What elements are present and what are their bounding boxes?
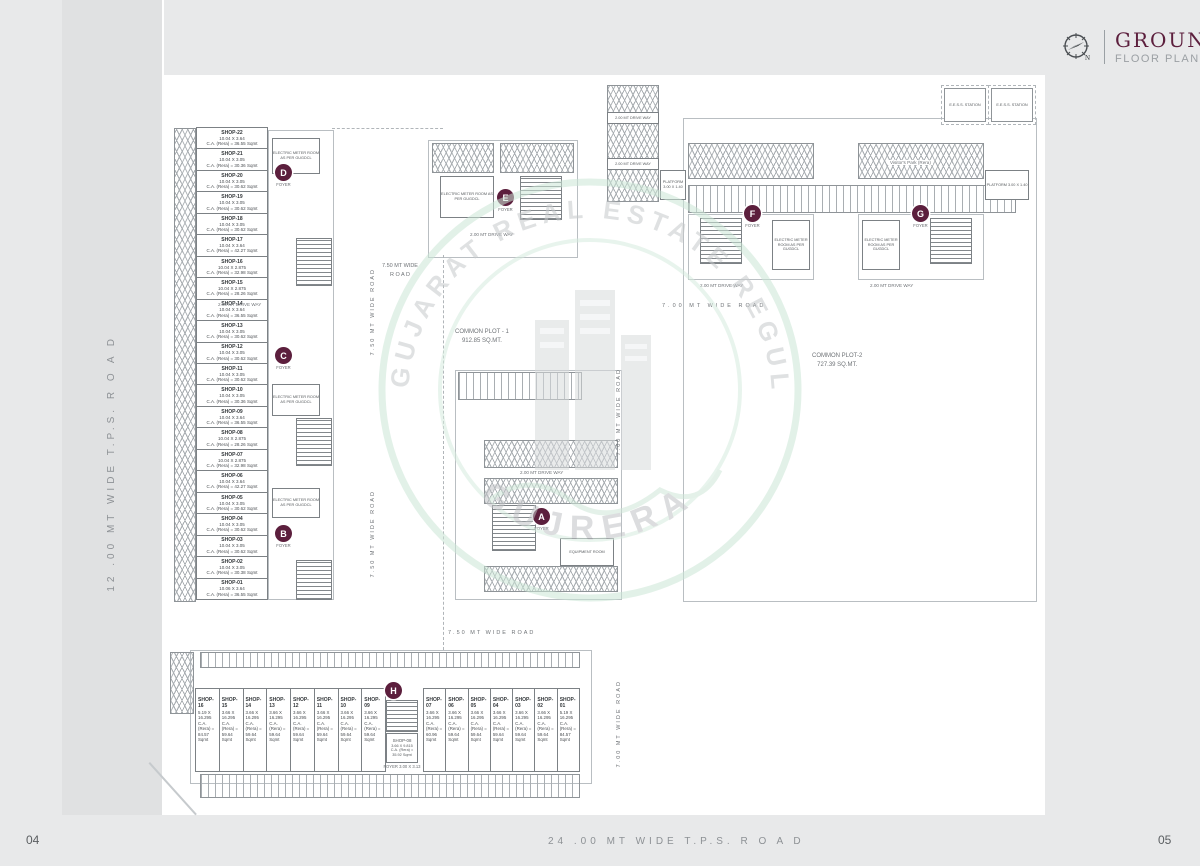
block-f-parking-top bbox=[688, 143, 814, 179]
marker-h-group: H bbox=[385, 682, 402, 699]
page-number-right: 05 bbox=[1158, 833, 1171, 847]
block-g-foyer: FOYER bbox=[912, 223, 929, 228]
shop-unit: SHOP-05 10.04 X 3.05 C.A. (Rera) = 30.62… bbox=[196, 492, 268, 514]
shop-unit: SHOP-13 3.66 X 16.295 C.A. (Rera) = 59.6… bbox=[266, 688, 291, 772]
top-strip-driveway-1: 2.00 MT DRIVE WAY bbox=[607, 112, 659, 124]
stair-c bbox=[296, 418, 332, 466]
block-c-marker: C bbox=[275, 347, 292, 364]
road-700-h: 7.00 MT WIDE ROAD bbox=[662, 303, 766, 309]
common-plot-2-area: 727.39 SQ.MT. bbox=[812, 361, 862, 370]
shop-unit: SHOP-17 10.04 X 3.64 C.A. (Rera) = 42.27… bbox=[196, 234, 268, 256]
platform-box-f: PLATFORM 3.00 X 1.40 bbox=[660, 170, 686, 200]
block-d-marker: D bbox=[275, 164, 292, 181]
fg-stall-band bbox=[688, 185, 1016, 213]
block-e-foyer: FOYER bbox=[497, 207, 514, 212]
shop-unit: SHOP-01 5.19 X 16.295 C.A. (Rera) = 84.5… bbox=[557, 688, 580, 772]
platform-box-g: PLATFORM 3.00 X 1.40 bbox=[985, 170, 1029, 200]
electric-room-b: ELECTRIC METER ROOM AS PER GUGDCL bbox=[272, 488, 320, 518]
floor-plan-sheet: 12 .00 MT WIDE T.P.S. R O A D 24 .00 MT … bbox=[0, 0, 1200, 866]
shop-unit: SHOP-03 3.66 X 16.295 C.A. (Rera) = 59.6… bbox=[512, 688, 535, 772]
shop-unit: SHOP-16 5.19 X 16.295 C.A. (Rera) = 84.5… bbox=[195, 688, 220, 772]
eess-station-2: E.E.S.S. STATION bbox=[991, 88, 1033, 122]
centre-stall-band bbox=[458, 372, 582, 400]
common-plot-1-name: COMMON PLOT - 1 bbox=[455, 328, 509, 337]
shop-unit: SHOP-14 3.66 X 16.295 C.A. (Rera) = 59.6… bbox=[243, 688, 268, 772]
shop-unit: SHOP-09 3.66 X 16.295 C.A. (Rera) = 59.6… bbox=[361, 688, 386, 772]
shop-unit: SHOP-21 10.04 X 3.05 C.A. (Rera) = 30.36… bbox=[196, 148, 268, 170]
block-g-electric-room: ELECTRIC METER ROOM AS PER GUGDCL bbox=[862, 220, 900, 270]
common-plot-1-area: 912.85 SQ.MT. bbox=[455, 337, 509, 346]
block-f-driveway-label: 2.00 MT DRIVE WAY bbox=[700, 283, 743, 288]
road-750-h-bottom: 7.50 MT WIDE ROAD bbox=[448, 630, 535, 636]
shop-unit: SHOP-15 10.04 X 2.875 C.A. (Rera) = 28.2… bbox=[196, 277, 268, 299]
stair-b bbox=[296, 560, 332, 600]
shop-unit: SHOP-18 10.04 X 3.05 C.A. (Rera) = 30.62… bbox=[196, 213, 268, 235]
visitors-park-label: Visitor's Park (Rera) bbox=[888, 160, 933, 165]
left-driveway-label-1: 2.00 MT DRIVE WAY bbox=[218, 302, 261, 307]
stair-a bbox=[492, 505, 536, 551]
shop-unit: SHOP-07 3.66 X 16.295 C.A. (Rera) = 60.9… bbox=[423, 688, 446, 772]
shop-08-bottom: SHOP-08 3.66 X 9.815 C.A. (Rera) = 35.92… bbox=[386, 733, 418, 763]
left-parking-strip bbox=[174, 128, 196, 602]
block-a-parking-1 bbox=[484, 440, 618, 468]
marker-f-group: F FOYER bbox=[744, 205, 761, 228]
shop-unit: SHOP-16 10.04 X 2.875 C.A. (Rera) = 32.9… bbox=[196, 256, 268, 278]
top-strip-driveway-2: 2.00 MT DRIVE WAY bbox=[607, 158, 659, 170]
shop-unit: SHOP-20 10.04 X 3.05 C.A. (Rera) = 30.62… bbox=[196, 170, 268, 192]
dashed-boundary-v bbox=[443, 255, 444, 650]
shop-unit: SHOP-06 3.66 X 16.295 C.A. (Rera) = 59.6… bbox=[445, 688, 468, 772]
shop-unit: SHOP-22 10.04 X 3.64 C.A. (Rera) = 36.55… bbox=[196, 127, 268, 149]
shop-unit: SHOP-12 3.66 X 16.295 C.A. (Rera) = 59.6… bbox=[290, 688, 315, 772]
shop-unit: SHOP-13 10.04 X 3.05 C.A. (Rera) = 30.62… bbox=[196, 320, 268, 342]
road-750-v2: 7.50 MT WIDE ROAD bbox=[370, 490, 376, 577]
marker-c-group: C FOYER bbox=[275, 347, 292, 370]
block-e-electric-room: ELECTRIC METER ROOM AS PER GUGDCL bbox=[440, 176, 494, 218]
shop-unit: SHOP-04 3.66 X 16.295 C.A. (Rera) = 59.6… bbox=[490, 688, 513, 772]
marker-b-group: B FOYER bbox=[275, 525, 292, 548]
block-a-parking-2 bbox=[484, 478, 618, 504]
road-700-v2: 7.00 MT WIDE ROAD bbox=[616, 680, 622, 767]
electric-room-c: ELECTRIC METER ROOM AS PER GUGDCL bbox=[272, 384, 320, 416]
common-plot-2-name: COMMON PLOT-2 bbox=[812, 352, 862, 361]
stair-h bbox=[386, 700, 418, 732]
block-c-foyer: FOYER bbox=[275, 365, 292, 370]
block-g-driveway-label: 2.00 MT DRIVE WAY bbox=[870, 283, 913, 288]
title-divider bbox=[1104, 30, 1105, 64]
shop-unit: SHOP-02 3.66 X 16.295 C.A. (Rera) = 59.6… bbox=[534, 688, 557, 772]
block-a-foyer: FOYER bbox=[533, 526, 550, 531]
block-e-marker: E bbox=[497, 189, 514, 206]
block-h-foyer: FOYER 3.00 X 3.13 bbox=[382, 764, 422, 769]
block-b-foyer: FOYER bbox=[275, 543, 292, 548]
road-750-top-line2: R O A D bbox=[382, 271, 418, 280]
bottom-shop-row-left: SHOP-16 5.19 X 16.295 C.A. (Rera) = 84.5… bbox=[196, 688, 386, 772]
title-block: N GROUND FLOOR PLAN bbox=[1058, 28, 1200, 65]
common-plot-2-label: COMMON PLOT-2 727.39 SQ.MT. bbox=[812, 352, 862, 370]
block-g-marker: G bbox=[912, 205, 929, 222]
block-a-equipment-room: EQUIPMENT ROOM bbox=[560, 538, 614, 566]
marker-g-group: G FOYER bbox=[912, 205, 929, 228]
shop-unit: SHOP-12 10.04 X 3.05 C.A. (Rera) = 30.62… bbox=[196, 342, 268, 364]
block-a-driveway-label-1: 2.00 MT DRIVE WAY bbox=[520, 470, 563, 475]
block-e-driveway-label: 2.00 MT DRIVE WAY bbox=[470, 232, 513, 237]
block-e-parking-2 bbox=[500, 143, 574, 173]
marker-d-group: D FOYER bbox=[275, 164, 292, 187]
shop-unit: SHOP-06 10.04 X 3.64 C.A. (Rera) = 42.27… bbox=[196, 470, 268, 492]
shop-unit: SHOP-11 3.66 X 16.295 C.A. (Rera) = 59.6… bbox=[314, 688, 339, 772]
road-750-top-line1: 7.50 MT WIDE bbox=[382, 262, 418, 271]
bottom-road-label: 24 .00 MT WIDE T.P.S. R O A D bbox=[548, 836, 805, 847]
shop-unit: SHOP-07 10.04 X 2.875 C.A. (Rera) = 32.9… bbox=[196, 449, 268, 471]
svg-text:N: N bbox=[1085, 54, 1090, 62]
shop-unit: SHOP-03 10.04 X 3.05 C.A. (Rera) = 30.62… bbox=[196, 535, 268, 557]
common-plot-1-label: COMMON PLOT - 1 912.85 SQ.MT. bbox=[455, 328, 509, 346]
bottom-left-parking-strip bbox=[170, 652, 194, 714]
stair-f bbox=[700, 218, 742, 264]
shop-unit: SHOP-05 3.66 X 16.295 C.A. (Rera) = 59.6… bbox=[468, 688, 491, 772]
road-750-top: 7.50 MT WIDE R O A D bbox=[382, 262, 418, 280]
stair-e bbox=[520, 176, 562, 220]
compass-icon: N bbox=[1058, 29, 1094, 65]
shop-unit: SHOP-10 10.04 X 3.05 C.A. (Rera) = 30.36… bbox=[196, 384, 268, 406]
block-b-marker: B bbox=[275, 525, 292, 542]
marker-e-group: E FOYER bbox=[497, 189, 514, 212]
stair-g bbox=[930, 218, 972, 264]
shop-unit: SHOP-10 3.66 X 16.295 C.A. (Rera) = 59.6… bbox=[338, 688, 363, 772]
road-750-v1: 7.50 MT WIDE ROAD bbox=[370, 268, 376, 355]
left-road-label: 12 .00 MT WIDE T.P.S. R O A D bbox=[106, 335, 117, 592]
shop-unit: SHOP-15 3.66 X 16.295 C.A. (Rera) = 59.6… bbox=[219, 688, 244, 772]
block-f-marker: F bbox=[744, 205, 761, 222]
road-700-v1: 7.00 MT WIDE ROAD bbox=[616, 368, 622, 455]
block-e-parking-1 bbox=[432, 143, 494, 173]
shop-unit: SHOP-02 10.04 X 3.05 C.A. (Rera) = 30.38… bbox=[196, 556, 268, 578]
block-f-electric-room: ELECTRIC METER ROOM AS PER GUGDCL bbox=[772, 220, 810, 270]
shop-unit: SHOP-11 10.04 X 3.05 C.A. (Rera) = 30.62… bbox=[196, 363, 268, 385]
top-parking-strip bbox=[607, 85, 659, 202]
marker-a-group: A FOYER bbox=[533, 508, 550, 531]
block-a-marker: A bbox=[533, 508, 550, 525]
shop-unit: SHOP-08 10.04 X 2.875 C.A. (Rera) = 28.2… bbox=[196, 427, 268, 449]
shop-unit: SHOP-04 10.04 X 3.05 C.A. (Rera) = 30.62… bbox=[196, 513, 268, 535]
eess-station-1: E.E.S.S. STATION bbox=[944, 88, 986, 122]
bottom-top-stall-band bbox=[200, 652, 580, 668]
page-subtitle: FLOOR PLAN bbox=[1115, 53, 1200, 65]
bottom-shop-row-right: SHOP-07 3.66 X 16.295 C.A. (Rera) = 60.9… bbox=[424, 688, 580, 772]
shop-unit: SHOP-09 10.04 X 3.64 C.A. (Rera) = 36.55… bbox=[196, 406, 268, 428]
block-a-parking-3 bbox=[484, 566, 618, 592]
page-title: GROUND bbox=[1115, 28, 1200, 52]
shop-unit: SHOP-01 10.06 X 3.64 C.A. (Rera) = 36.55… bbox=[196, 578, 268, 600]
block-h-marker: H bbox=[385, 682, 402, 699]
page-number-left: 04 bbox=[26, 833, 39, 847]
block-d-foyer: FOYER bbox=[275, 182, 292, 187]
stair-d bbox=[296, 238, 332, 286]
shop-unit: SHOP-19 10.04 X 3.05 C.A. (Rera) = 30.62… bbox=[196, 191, 268, 213]
block-f-foyer: FOYER bbox=[744, 223, 761, 228]
bottom-stall-band bbox=[200, 774, 580, 798]
left-shop-column: SHOP-22 10.04 X 3.64 C.A. (Rera) = 36.55… bbox=[196, 128, 268, 600]
dashed-boundary-h bbox=[332, 128, 443, 129]
